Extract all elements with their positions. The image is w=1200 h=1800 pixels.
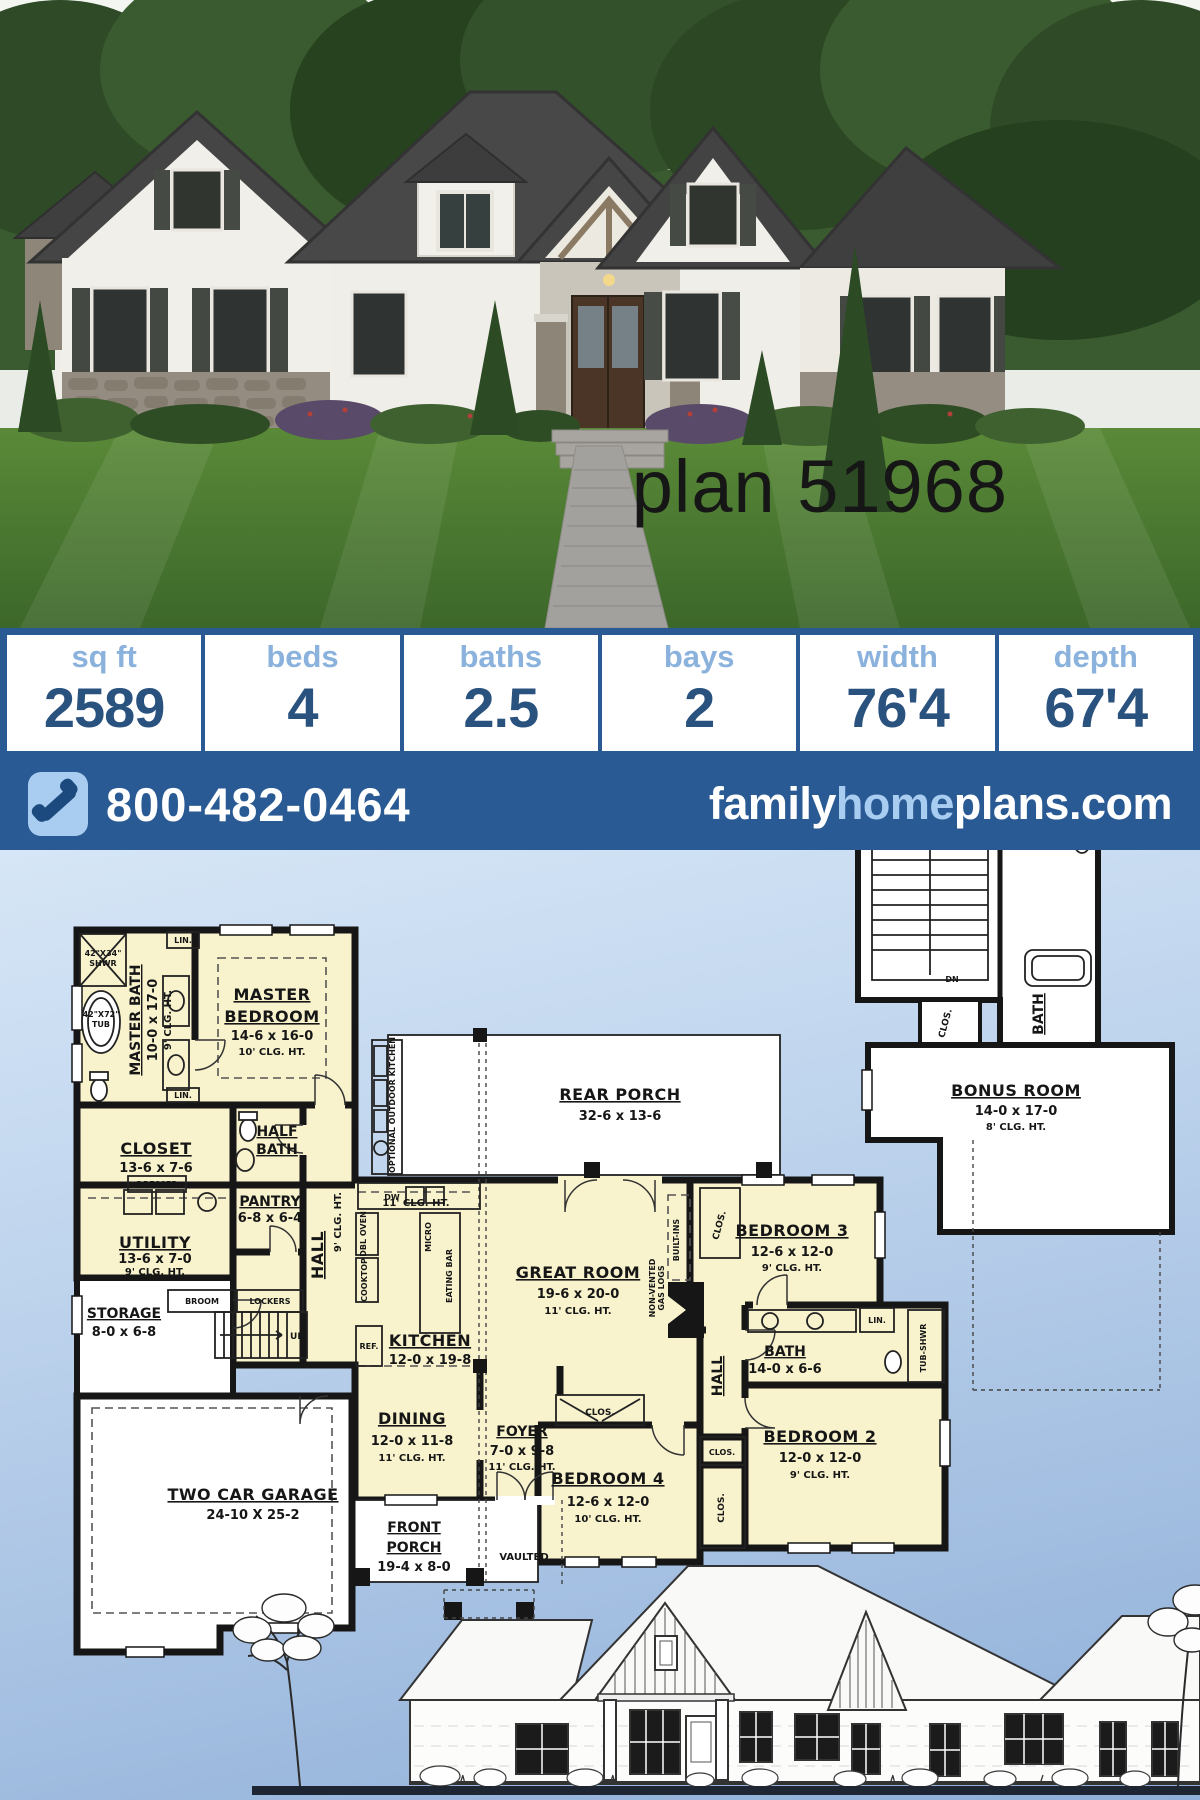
room-label-bath: BATH: [764, 1344, 806, 1360]
shower-label: SHWR: [89, 959, 116, 968]
dbl-oven-label: DBL OVEN: [359, 1211, 368, 1257]
room-label-kitchen: KITCHEN: [389, 1331, 471, 1350]
room-dims-bedroom4: 12-6 x 12-0: [567, 1495, 650, 1510]
ref-label: REF.: [360, 1342, 379, 1351]
hero-photo: plan 51968: [0, 0, 1200, 628]
room-clg-master-bedroom: 10' CLG. HT.: [238, 1047, 305, 1058]
room-label-front-porch1: FRONT: [387, 1520, 441, 1536]
contact-bar: 800-482-0464 familyhomeplans.com: [0, 758, 1200, 850]
room-clg-great-room: 11' CLG. HT.: [544, 1306, 611, 1317]
room-clg-bedroom4: 10' CLG. HT.: [574, 1514, 641, 1525]
room-label-bedroom3: BEDROOM 3: [735, 1221, 848, 1240]
linen-label: LIN.: [174, 1091, 192, 1100]
gas-logs-label2: GAS LOGS: [657, 1265, 666, 1310]
room-label-dining: DINING: [378, 1409, 446, 1428]
pin-image: plan 51968 sq ft 2589 beds 4 baths 2.5 b…: [0, 0, 1200, 1800]
fireplace: [668, 1282, 704, 1338]
room-label-bedroom4: BEDROOM 4: [551, 1469, 664, 1488]
stat-label: depth: [1054, 640, 1138, 674]
room-dims-closet: 13-6 x 7-6: [119, 1161, 192, 1176]
room-dims-bedroom3: 12-6 x 12-0: [751, 1245, 834, 1260]
room-label-half-bath1: HALF: [256, 1124, 297, 1140]
stat-depth: depth 67'4: [995, 635, 1193, 751]
linen-label: LIN.: [174, 936, 192, 945]
rear-porch-area: [388, 1035, 780, 1175]
stat-value: 76'4: [846, 674, 949, 741]
shower-size: 42"X34": [85, 949, 122, 958]
room-dims-garage: 24-10 X 25-2: [206, 1508, 299, 1523]
vaulted-label: VAULTED: [499, 1552, 548, 1563]
room-dims-rear-porch: 32-6 x 13-6: [579, 1109, 662, 1124]
room-label-utility: UTILITY: [119, 1233, 191, 1252]
room-label-front-porch2: PORCH: [387, 1540, 442, 1556]
outdoor-kitchen-label: OPTIONAL OUTDOOR KITCHEN: [388, 1037, 397, 1173]
room-label-master-bedroom2: BEDROOM: [224, 1007, 319, 1026]
room-clg-bonus: 8' CLG. HT.: [986, 1122, 1046, 1133]
stat-beds: beds 4: [201, 635, 399, 751]
room-label-half-bath2: BATH: [256, 1142, 298, 1158]
logo-plans: plans: [954, 778, 1069, 829]
dw-label: DW: [384, 1193, 400, 1202]
room-dims-master-bedroom: 14-6 x 16-0: [231, 1029, 314, 1044]
elevation-drawing: [233, 1566, 1200, 1795]
plan-number-label: plan 51968: [632, 445, 1008, 528]
room-label-great-room: GREAT ROOM: [516, 1263, 640, 1282]
room-label-master-bedroom: MASTER: [234, 985, 311, 1004]
house-photo-illustration: plan 51968: [0, 0, 1200, 628]
room-label-master-bath: MASTER BATH: [128, 964, 144, 1075]
tub-label: TUB: [92, 1020, 110, 1029]
stat-value: 2.5: [463, 674, 538, 741]
room-label-bonus: BONUS ROOM: [951, 1081, 1081, 1100]
stat-label: sq ft: [71, 640, 136, 674]
stat-label: width: [857, 640, 938, 674]
room-label-storage: STORAGE: [87, 1306, 161, 1322]
linen-label-bath: LIN.: [868, 1316, 886, 1325]
floor-plan: MASTER BATH 10-0 x 17-0 9' CLG. HT. 42"X…: [0, 850, 1200, 1800]
logo-tld: .com: [1069, 778, 1172, 829]
micro-label: MICRO: [424, 1222, 433, 1252]
room-label-rear-porch: REAR PORCH: [559, 1085, 680, 1104]
logo-home: home: [836, 778, 954, 829]
up-label: UP: [290, 1332, 304, 1342]
stat-label: bays: [664, 640, 735, 674]
dn-label: DN: [945, 975, 958, 984]
room-dims-front-porch: 19-4 x 8-0: [377, 1560, 450, 1575]
room-dims-master-bath: 10-0 x 17-0: [146, 979, 161, 1062]
stat-label: beds: [266, 640, 338, 674]
room-label-hall-right: HALL: [710, 1356, 726, 1396]
eating-bar-label: EATING BAR: [445, 1249, 454, 1303]
room-dims-storage: 8-0 x 6-8: [92, 1325, 156, 1340]
room-clg-utility: 9' CLG. HT.: [125, 1267, 185, 1278]
room-clg-dining: 11' CLG. HT.: [378, 1453, 445, 1464]
room-dims-great-room: 19-6 x 20-0: [537, 1287, 620, 1302]
stat-width: width 76'4: [796, 635, 994, 751]
room-label-hall-left: HALL: [308, 1231, 327, 1279]
room-label-bedroom2: BEDROOM 2: [763, 1427, 876, 1446]
clos-label-vert: CLOS.: [717, 1493, 727, 1523]
stat-value: 4: [287, 674, 317, 741]
stat-value: 2: [684, 674, 714, 741]
room-dims-foyer: 7-0 x 9-8: [490, 1444, 554, 1459]
stat-value: 67'4: [1044, 674, 1147, 741]
dresser-label: DRESSER: [136, 1180, 177, 1189]
stat-bays: bays 2: [598, 635, 796, 751]
logo-family: family: [709, 778, 836, 829]
website-logo: familyhomeplans.com: [709, 778, 1172, 830]
room-dims-kitchen: 12-0 x 19-8: [389, 1353, 472, 1368]
room-clg-bedroom3: 9' CLG. HT.: [762, 1263, 822, 1274]
floor-plan-section: MASTER BATH 10-0 x 17-0 9' CLG. HT. 42"X…: [0, 850, 1200, 1800]
room-dims-utility: 13-6 x 7-0: [118, 1252, 191, 1267]
cooktop-label: COOKTOP: [360, 1258, 369, 1302]
phone-icon: [28, 772, 88, 836]
clos-label-small: CLOS.: [709, 1448, 735, 1457]
gas-logs-label1: NON-VENTED: [648, 1258, 657, 1317]
room-label-pantry: PANTRY: [239, 1194, 301, 1210]
room-label-garage: TWO CAR GARAGE: [167, 1485, 338, 1504]
room-clg-bedroom2: 9' CLG. HT.: [790, 1470, 850, 1481]
phone-number: 800-482-0464: [106, 777, 411, 832]
main-floor-plan: MASTER BATH 10-0 x 17-0 9' CLG. HT. 42"X…: [72, 925, 950, 1657]
lockers-label: LOCKERS: [249, 1297, 290, 1306]
room-clg-hall-left: 9' CLG. HT.: [333, 1192, 344, 1252]
room-dims-bath: 14-0 x 6-6: [748, 1362, 821, 1377]
room-dims-bonus: 14-0 x 17-0: [975, 1104, 1058, 1119]
room-clg-foyer: 11' CLG. HT.: [488, 1462, 555, 1473]
broom-label: BROOM: [185, 1297, 219, 1306]
stats-bar: sq ft 2589 beds 4 baths 2.5 bays 2 width…: [0, 628, 1200, 758]
built-ins-label: BUILT-INS: [672, 1219, 681, 1262]
room-label-closet: CLOSET: [120, 1139, 191, 1158]
tub-shwr-label: TUB-SHWR: [919, 1324, 928, 1373]
room-label-foyer: FOYER: [496, 1424, 548, 1440]
room-dims-dining: 12-0 x 11-8: [371, 1434, 454, 1449]
tub-size: 42"X72": [83, 1010, 120, 1019]
elevation-ground-line: [252, 1786, 1200, 1795]
room-clg-master-bath: 9' CLG. HT.: [163, 990, 174, 1050]
room-dims-bedroom2: 12-0 x 12-0: [779, 1451, 862, 1466]
stat-baths: baths 2.5: [400, 635, 598, 751]
stat-value: 2589: [44, 674, 165, 741]
room-label-bonus-bath: BATH: [1031, 993, 1047, 1035]
stat-label: baths: [459, 640, 542, 674]
clos-label-bed4: CLOS.: [585, 1408, 615, 1418]
room-dims-pantry: 6-8 x 6-4: [238, 1211, 302, 1226]
stat-sqft: sq ft 2589: [7, 635, 201, 751]
